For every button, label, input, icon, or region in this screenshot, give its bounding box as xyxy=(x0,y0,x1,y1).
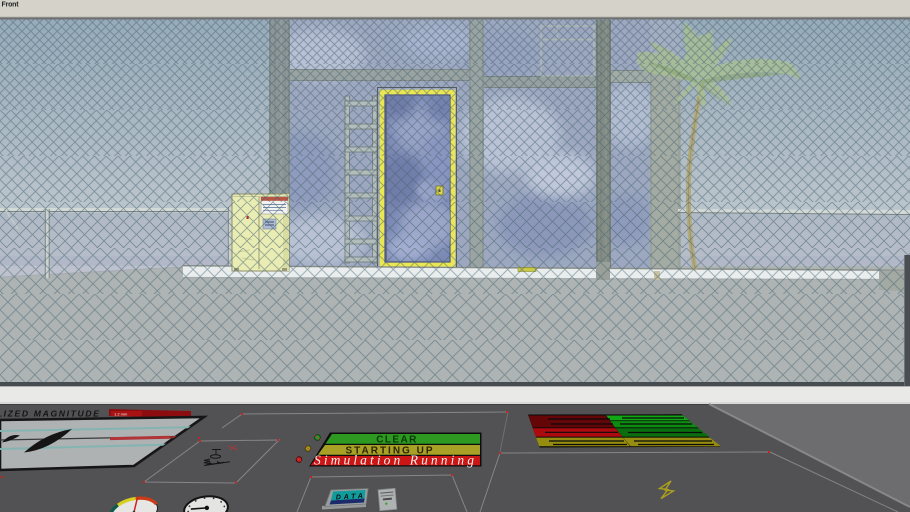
svg-text:CLEAR: CLEAR xyxy=(376,435,417,446)
svg-text:Front: Front xyxy=(2,2,20,9)
svg-text:Simulation Running: Simulation Running xyxy=(314,453,474,468)
svg-text:1.2 mm: 1.2 mm xyxy=(114,412,128,417)
